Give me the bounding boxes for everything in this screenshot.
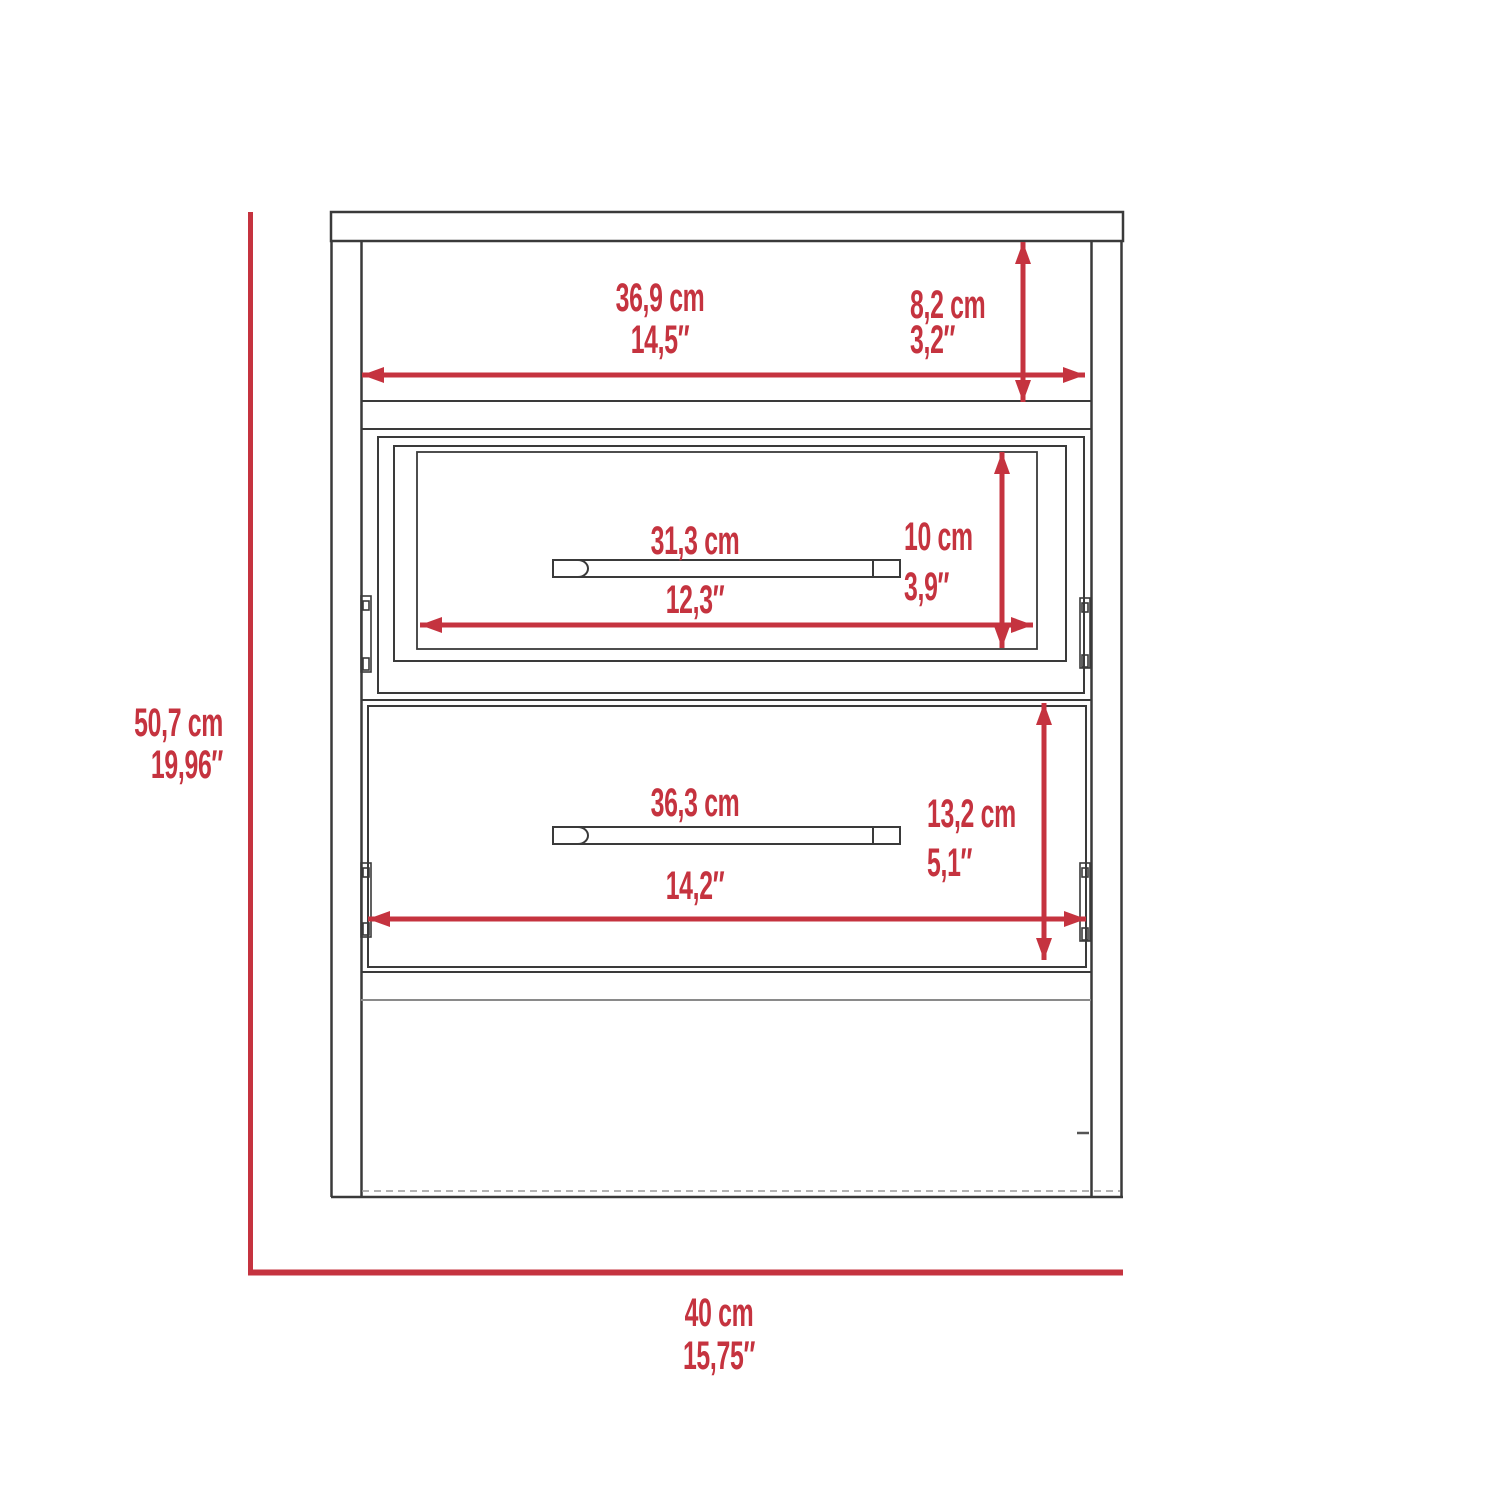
dim-value-cm: 50,7 cm	[37, 703, 223, 743]
dim-value-in: 15,75″	[626, 1336, 812, 1376]
dim-label-drawer2-height: 13,2 cm 5,1″	[927, 794, 1227, 883]
dim-value-cm: 13,2 cm	[927, 794, 1113, 834]
dim-label-top-shelf-height: 8,2 cm 3,2″	[910, 285, 1210, 360]
dim-label-overall-width: 40 cm 15,75″	[569, 1293, 869, 1376]
dim-label-top-shelf-width: 36,9 cm 14,5″	[510, 278, 810, 360]
cabinet-line-drawing	[0, 0, 1500, 1500]
top-panel	[331, 212, 1123, 241]
side-walls	[332, 241, 1122, 1197]
dimension-drawing-canvas: 36,9 cm 14,5″ 8,2 cm 3,2″ 31,3 cm 12,3″ …	[0, 0, 1500, 1500]
dim-value-in: 5,1″	[927, 843, 1113, 883]
dim-value-in: 14,5″	[567, 320, 753, 360]
dim-value-in: 3,9″	[904, 567, 1090, 607]
dim-label-drawer1-width: 31,3 cm 12,3″	[545, 521, 845, 620]
dim-value-in: 19,96″	[37, 745, 223, 785]
dimension-graphics	[248, 212, 1123, 1273]
overall-dimension-bracket	[248, 212, 1123, 1273]
dim-value-in: 14,2″	[602, 866, 788, 906]
dim-label-drawer1-height: 10 cm 3,9″	[904, 517, 1204, 607]
dim-value-cm: 10 cm	[904, 517, 1090, 557]
shelf-board	[361, 401, 1091, 429]
dim-value-cm: 31,3 cm	[602, 521, 788, 561]
dim-label-drawer2-width: 36,3 cm 14,2″	[545, 783, 845, 906]
dim-label-overall-height: 50,7 cm 19,96″	[0, 703, 223, 785]
dim-value-cm: 36,9 cm	[567, 278, 753, 318]
dim-value-in: 12,3″	[602, 580, 788, 620]
dim-value-in: 3,2″	[910, 320, 1096, 360]
dim-value-cm: 36,3 cm	[602, 783, 788, 823]
dim-value-cm: 40 cm	[626, 1293, 812, 1333]
